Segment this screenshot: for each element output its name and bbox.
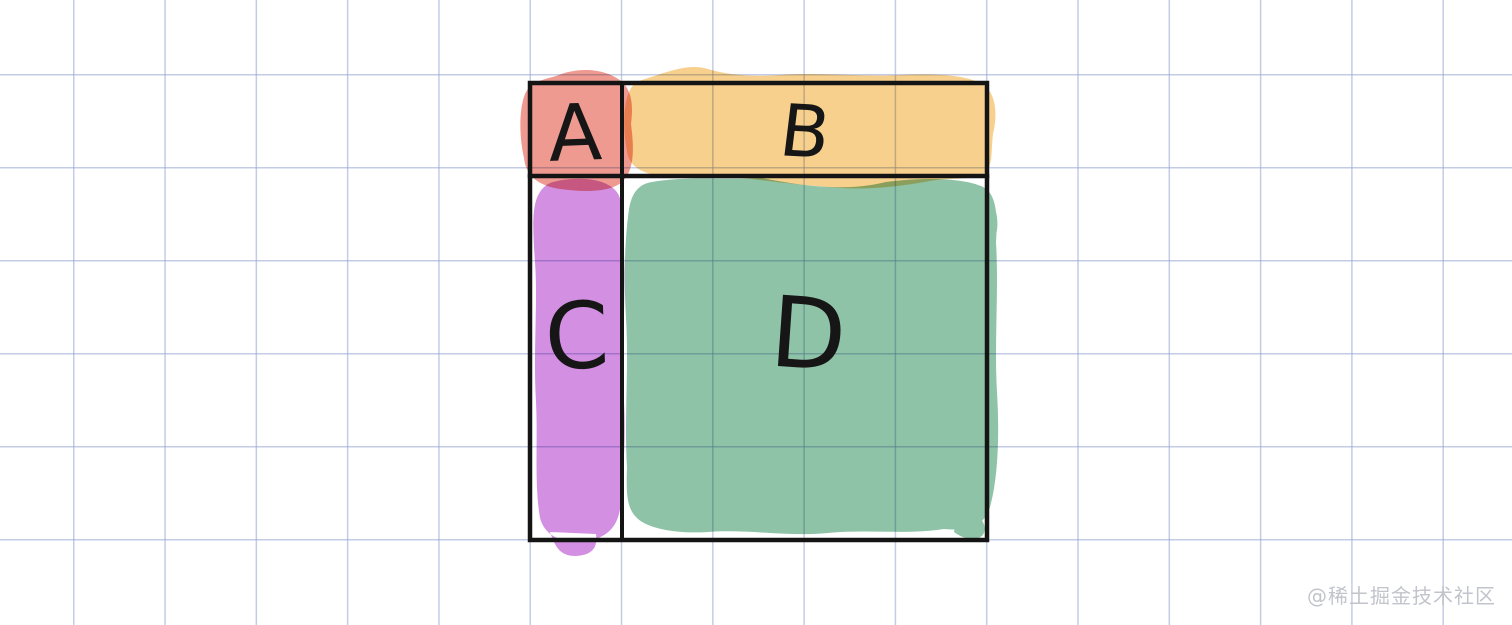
cell-c-label: C [543, 282, 611, 391]
watermark: @稀土掘金技术社区 [1307, 580, 1496, 609]
cell-a-label: A [547, 88, 603, 180]
cell-d-label: D [767, 276, 850, 395]
grid-paper-canvas: A B C D @稀土掘金技术社区 [0, 0, 1512, 625]
quadrant-diagram: A B C D [0, 0, 1512, 625]
cell-b-label: B [775, 89, 835, 175]
